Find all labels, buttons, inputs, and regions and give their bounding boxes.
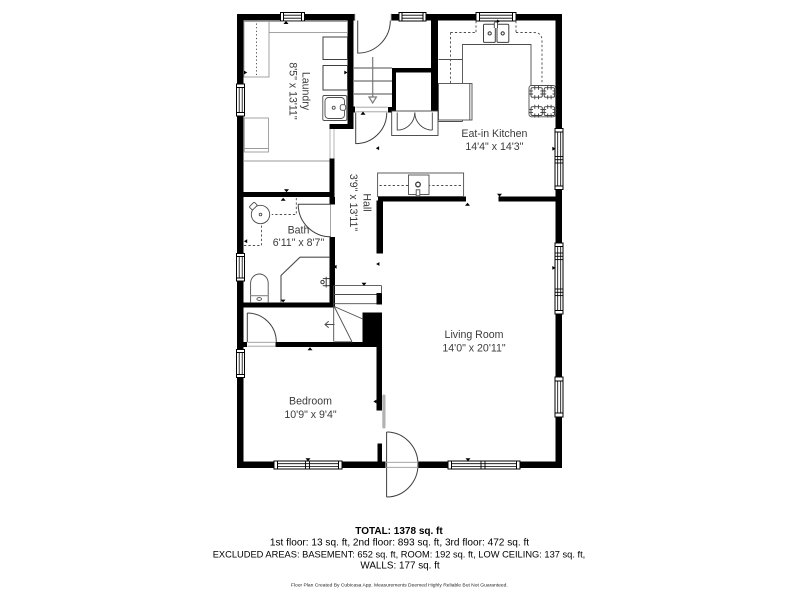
svg-text:EXCLUDED AREAS: BASEMENT: 652: EXCLUDED AREAS: BASEMENT: 652 sq. ft, RO… — [213, 550, 586, 560]
svg-text:WALLS: 177 sq. ft: WALLS: 177 sq. ft — [360, 560, 439, 571]
svg-text:Eat-in Kitchen14'4" x 14'3": Eat-in Kitchen14'4" x 14'3" — [461, 128, 527, 153]
svg-text:Living Room14'0" x 20'11": Living Room14'0" x 20'11" — [442, 329, 505, 354]
svg-text:1st floor: 13 sq. ft, 2nd floo: 1st floor: 13 sq. ft, 2nd floor: 893 sq.… — [270, 538, 529, 549]
svg-text:TOTAL: 1378 sq. ft: TOTAL: 1378 sq. ft — [355, 526, 443, 537]
svg-text:Floor Plan Created By Cubicasa: Floor Plan Created By Cubicasa App. Meas… — [291, 582, 508, 588]
svg-text:Bedroom10'9" x 9'4": Bedroom10'9" x 9'4" — [284, 396, 336, 421]
